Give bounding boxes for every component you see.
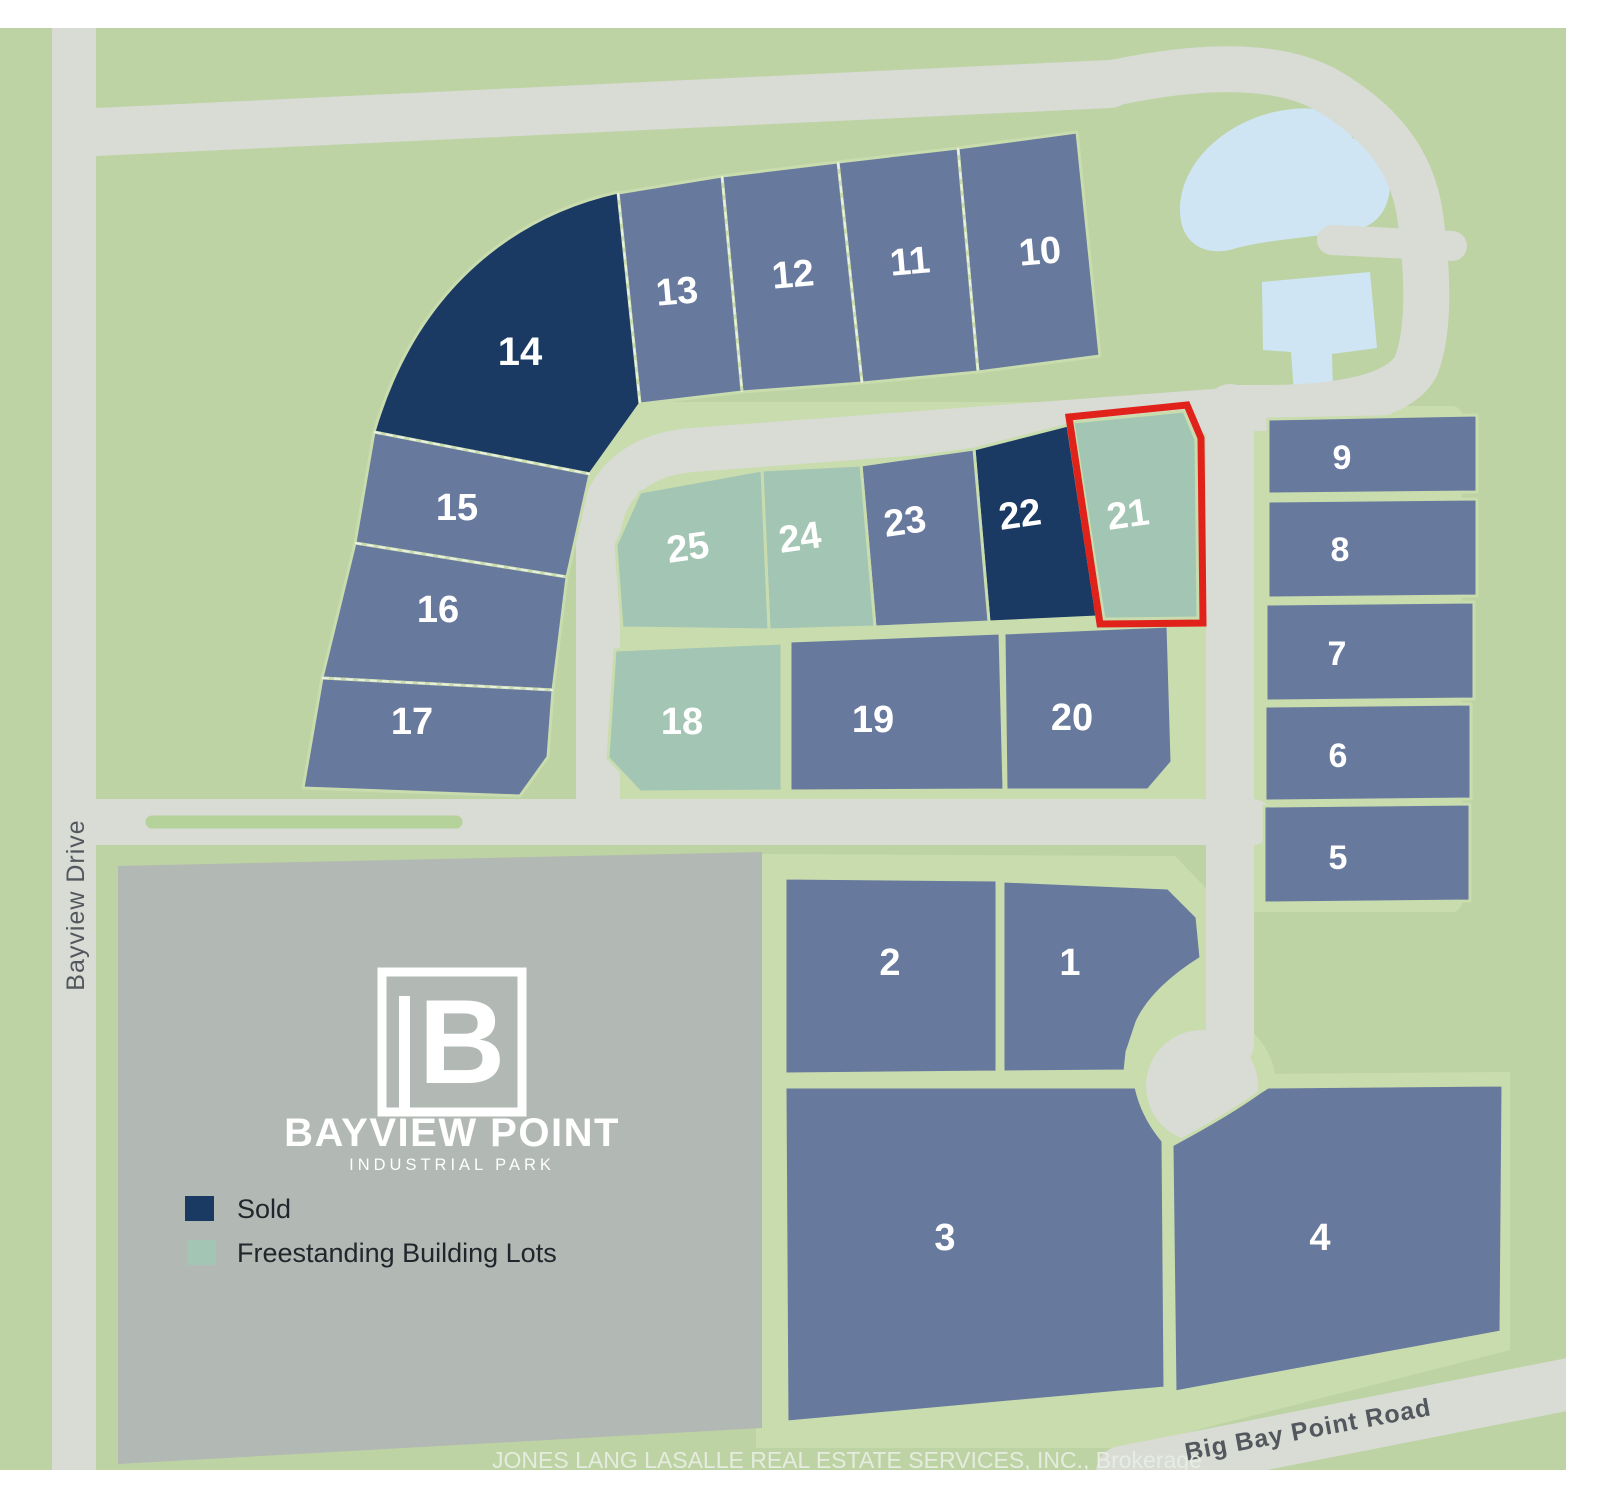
logo-monogram: B xyxy=(419,975,506,1109)
site-plan: 1 2 3 4 5 6 7 8 9 10 11 12 13 14 15 16 1… xyxy=(0,0,1600,1501)
legend-label-sold: Sold xyxy=(237,1194,291,1224)
legend-swatch-sold xyxy=(185,1196,214,1221)
lot-3-label: 3 xyxy=(934,1217,955,1259)
logo-stem xyxy=(399,996,410,1112)
lot-16-label: 16 xyxy=(417,589,459,631)
legend-swatch-freestanding xyxy=(187,1240,216,1265)
lot-7-label: 7 xyxy=(1328,635,1347,673)
lot-3-shape xyxy=(785,1087,1165,1422)
lot-6-label: 6 xyxy=(1329,737,1348,775)
lot-11-label: 11 xyxy=(888,239,932,284)
legend-label-freestanding: Freestanding Building Lots xyxy=(237,1238,557,1268)
road-pond-stub xyxy=(1332,240,1452,246)
lot-1-label: 1 xyxy=(1059,942,1080,984)
lot-5-label: 5 xyxy=(1329,839,1348,877)
lot-25-label: 25 xyxy=(664,524,712,571)
lot-10-label: 10 xyxy=(1017,229,1063,275)
lot-13-label: 13 xyxy=(654,269,700,315)
lot-19-label: 19 xyxy=(852,699,894,741)
lot-24-label: 24 xyxy=(776,514,824,561)
lot-7-shape xyxy=(1266,602,1474,701)
lot-15-label: 15 xyxy=(436,487,478,529)
lot-2-label: 2 xyxy=(879,942,900,984)
lot-4-label: 4 xyxy=(1309,1217,1330,1259)
lot-8-label: 8 xyxy=(1331,531,1350,569)
brokerage-attribution: JONES LANG LASALLE REAL ESTATE SERVICES,… xyxy=(492,1447,1202,1473)
bayview-drive-label: Bayview Drive xyxy=(62,819,90,990)
site-plan-canvas: 1 2 3 4 5 6 7 8 9 10 11 12 13 14 15 16 1… xyxy=(0,0,1600,1501)
lot-21-label: 21 xyxy=(1104,491,1152,538)
lot-19-shape xyxy=(790,633,1004,791)
logo-subtitle: INDUSTRIAL PARK xyxy=(349,1156,555,1174)
lot-5-shape xyxy=(1264,804,1470,903)
lot-23-label: 23 xyxy=(881,498,929,545)
lot-20-label: 20 xyxy=(1051,697,1093,739)
lot-14-label: 14 xyxy=(498,330,543,374)
logo-title: BAYVIEW POINT xyxy=(284,1111,620,1155)
lot-17-label: 17 xyxy=(391,701,433,743)
lot-18-label: 18 xyxy=(661,701,703,743)
lot-9-shape xyxy=(1268,415,1477,494)
lot-22-label: 22 xyxy=(996,491,1044,538)
lot-6-shape xyxy=(1265,704,1471,801)
lot-9-label: 9 xyxy=(1333,439,1352,477)
lot-8-shape xyxy=(1268,499,1477,598)
lot-12-label: 12 xyxy=(770,252,816,298)
